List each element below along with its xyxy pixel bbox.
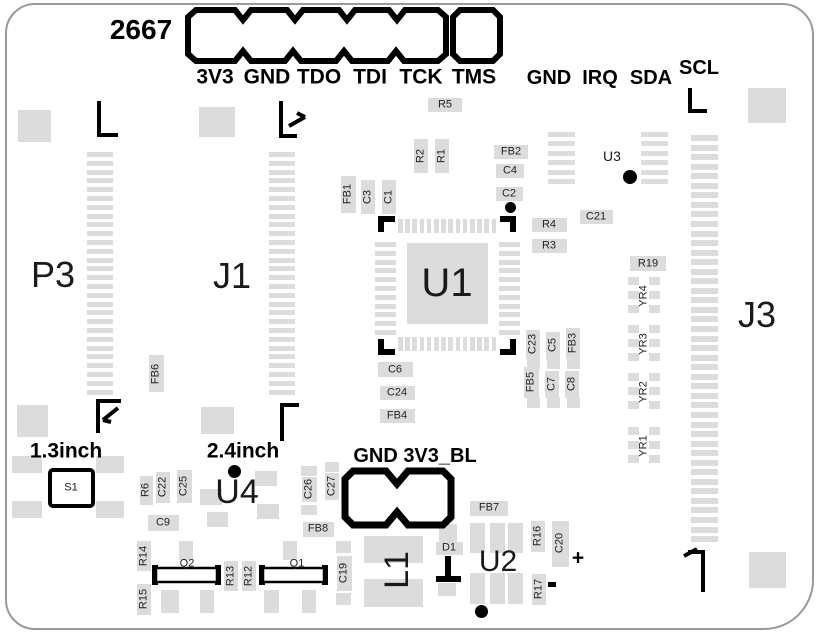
connector-pad	[87, 310, 113, 315]
connector-pad	[499, 268, 520, 273]
connector-pad	[548, 179, 575, 184]
connector-pad	[269, 328, 295, 333]
silk-mark	[215, 565, 221, 585]
refdes-c5: C5	[548, 338, 559, 352]
connector-pad	[420, 337, 425, 351]
connector-pad	[641, 141, 668, 146]
refdes-c24: C24	[387, 388, 407, 399]
connector-pad	[87, 390, 113, 395]
connector-pad	[87, 161, 113, 166]
connector-pad	[87, 222, 113, 227]
refdes-r3: R3	[542, 241, 556, 252]
connector-pad	[499, 277, 520, 282]
refdes-u3: U3	[603, 149, 621, 163]
refdes-r5: R5	[438, 100, 452, 111]
connector-pad	[641, 170, 668, 175]
connector-pad	[691, 441, 718, 447]
connector-pad	[405, 219, 410, 233]
connector-pad	[269, 346, 295, 351]
connector-pad	[87, 302, 113, 307]
connector-pad	[477, 219, 482, 233]
refdes-r17: R17	[534, 579, 545, 599]
connector-pad	[463, 219, 468, 233]
connector-pad	[448, 337, 453, 351]
silk-mark	[152, 565, 158, 585]
connector-pad	[375, 321, 396, 326]
connector-pad	[269, 310, 295, 315]
pad	[649, 353, 660, 361]
connector-pad	[499, 242, 520, 247]
silk-mark	[322, 565, 328, 585]
refdes-c27: C27	[327, 476, 338, 496]
polarity-plus-mark: +	[572, 548, 584, 569]
connector-pad	[499, 260, 520, 265]
pad	[257, 504, 279, 519]
connector-pad	[691, 383, 718, 389]
pad	[264, 590, 279, 613]
silk-mark	[445, 556, 451, 578]
refdes-c21: C21	[586, 212, 606, 223]
connector-pad	[87, 231, 113, 236]
connector-pad	[87, 381, 113, 386]
connector-pad	[641, 179, 668, 184]
refdes-j3: J3	[738, 297, 776, 333]
jtag-pin-label-tdi: TDI	[353, 67, 387, 88]
connector-pad	[641, 160, 668, 165]
connector-pad	[492, 337, 497, 351]
jtag-pin-label-gnd: GND	[244, 67, 291, 88]
silk-mark	[436, 576, 461, 582]
connector-pad	[412, 219, 417, 233]
connector-pad	[691, 316, 718, 322]
refdes-u2: U2	[479, 547, 517, 577]
connector-pad	[691, 135, 718, 141]
connector-pad	[484, 337, 489, 351]
pad	[628, 325, 639, 333]
refdes-r14: R14	[139, 546, 150, 566]
pin1-dot	[505, 202, 516, 213]
refdes-fb6: FB6	[151, 364, 162, 384]
connector-pad	[691, 364, 718, 370]
refdes-c22: C22	[158, 477, 169, 497]
connector-pad	[691, 374, 718, 380]
pad	[649, 277, 660, 285]
pad	[547, 359, 560, 369]
connector-pad	[269, 390, 295, 395]
connector-pad	[492, 219, 497, 233]
pad	[628, 277, 639, 285]
connector-pad	[87, 354, 113, 359]
pad	[301, 505, 317, 515]
connector-pad	[87, 187, 113, 192]
pad	[336, 593, 351, 605]
pad	[547, 397, 560, 408]
refdes-q2: Q2	[180, 559, 195, 570]
connector-pad	[434, 337, 439, 351]
connector-pad	[375, 295, 396, 300]
connector-pad	[87, 266, 113, 271]
pad	[649, 427, 660, 435]
board-marking: 2667	[110, 16, 172, 44]
refdes-yr3: YR3	[639, 333, 650, 354]
connector-pad	[375, 286, 396, 291]
connector-pad	[691, 278, 718, 284]
connector-pad	[269, 205, 295, 210]
jtag-pin-label-tdo: TDO	[297, 67, 341, 88]
refdes-fb3: FB3	[568, 333, 579, 353]
annotation-1-3inch: 1.3inch	[30, 441, 102, 462]
pad	[748, 88, 786, 123]
connector-pad	[269, 275, 295, 280]
backlight-header-label: GND 3V3_BL	[353, 446, 476, 466]
connector-pad	[691, 192, 718, 198]
connector-pad	[87, 363, 113, 368]
refdes-c3: C3	[363, 190, 374, 204]
pad	[649, 325, 660, 333]
connector-pad	[87, 214, 113, 219]
connector-pad	[420, 219, 425, 233]
pad	[649, 387, 660, 395]
connector-pad	[641, 132, 668, 137]
connector-pad	[269, 284, 295, 289]
pin1-dot	[475, 605, 488, 618]
refdes-c7: C7	[547, 377, 558, 391]
connector-pad	[691, 202, 718, 208]
connector-pad	[691, 507, 718, 513]
connector-pad	[691, 221, 718, 227]
connector-pad	[691, 431, 718, 437]
pad	[649, 441, 660, 449]
connector-pad	[269, 187, 295, 192]
connector-pad	[405, 337, 410, 351]
connector-pad	[87, 293, 113, 298]
pin1-dot	[623, 170, 637, 184]
connector-pad	[269, 161, 295, 166]
refdes-r2: R2	[416, 149, 427, 163]
connector-pad	[427, 337, 432, 351]
connector-pad	[87, 249, 113, 254]
connector-pad	[548, 132, 575, 137]
refdes-c8: C8	[567, 377, 578, 391]
refdes-fb5: FB5	[526, 372, 537, 392]
refdes-r1: R1	[437, 149, 448, 163]
refdes-fb8: FB8	[308, 524, 328, 535]
connector-pad	[87, 372, 113, 377]
connector-pad	[548, 160, 575, 165]
connector-pad	[375, 330, 396, 335]
pad	[17, 405, 48, 437]
connector-pad	[269, 170, 295, 175]
connector-pad	[691, 250, 718, 256]
connector-pad	[463, 337, 468, 351]
refdes-c26: C26	[304, 479, 315, 499]
connector-pad	[691, 402, 718, 408]
refdes-l1: L1	[380, 551, 414, 589]
refdes-yr4: YR4	[639, 285, 650, 306]
connector-pad	[499, 251, 520, 256]
refdes-fb4: FB4	[387, 411, 407, 422]
pad	[18, 110, 51, 142]
pad	[207, 512, 228, 527]
connector-pad	[691, 259, 718, 265]
connector-pad	[470, 219, 475, 233]
refdes-r13: R13	[226, 566, 237, 586]
refdes-fb2: FB2	[501, 147, 521, 158]
pad	[201, 407, 234, 434]
connector-pad	[269, 258, 295, 263]
refdes-c2: C2	[502, 189, 516, 200]
refdes-u4: U4	[215, 475, 258, 509]
connector-pad	[269, 214, 295, 219]
connector-pad	[87, 152, 113, 157]
pad	[649, 339, 660, 347]
pad	[649, 291, 660, 299]
connector-pad	[691, 479, 718, 485]
pad	[649, 401, 660, 409]
pad	[438, 583, 456, 596]
connector-pad	[375, 242, 396, 247]
connector-pad	[691, 422, 718, 428]
connector-pad	[691, 231, 718, 237]
connector-pad	[375, 312, 396, 317]
connector-pad	[269, 293, 295, 298]
refdes-j1: J1	[213, 258, 251, 294]
connector-pad	[87, 328, 113, 333]
refdes-r4: R4	[542, 220, 556, 231]
connector-pad	[691, 154, 718, 160]
refdes-c9: C9	[156, 518, 170, 529]
refdes-r15: R15	[139, 589, 150, 609]
refdes-s1: S1	[64, 483, 77, 494]
i2c-label-scl: SCL	[679, 58, 719, 78]
connector-pad	[691, 240, 718, 246]
connector-pad	[691, 536, 718, 542]
connector-pad	[691, 527, 718, 533]
connector-pad	[691, 211, 718, 217]
pad	[439, 524, 457, 542]
connector-pad	[691, 326, 718, 332]
connector-pad	[375, 304, 396, 309]
connector-pad	[441, 337, 446, 351]
connector-pad	[269, 319, 295, 324]
pad	[527, 397, 540, 408]
connector-pad	[548, 141, 575, 146]
connector-pad	[691, 412, 718, 418]
silk-mark	[259, 565, 265, 585]
connector-pad	[269, 302, 295, 307]
refdes-c1: C1	[384, 190, 395, 204]
pad	[325, 462, 339, 472]
connector-pad	[87, 170, 113, 175]
connector-pad	[691, 355, 718, 361]
connector-pad	[548, 170, 575, 175]
connector-pad	[269, 196, 295, 201]
annotation-2-4inch: 2.4inch	[207, 441, 279, 462]
connector-pad	[470, 337, 475, 351]
connector-pad	[269, 240, 295, 245]
connector-pad	[269, 381, 295, 386]
pad	[649, 455, 660, 463]
connector-pad	[691, 307, 718, 313]
connector-pad	[87, 337, 113, 342]
connector-pad	[398, 337, 403, 351]
connector-pad	[499, 330, 520, 335]
connector-pad	[691, 183, 718, 189]
pad	[200, 590, 214, 613]
connector-pad	[87, 240, 113, 245]
refdes-r16: R16	[533, 526, 544, 546]
connector-pad	[375, 277, 396, 282]
refdes-c4: C4	[503, 166, 517, 177]
pad	[199, 107, 235, 137]
connector-pad	[691, 488, 718, 494]
jtag-pin-label-3v3: 3V3	[196, 67, 233, 88]
connector-pad	[691, 393, 718, 399]
connector-pad	[641, 151, 668, 156]
connector-pad	[691, 336, 718, 342]
connector-pad	[448, 219, 453, 233]
pad	[161, 590, 179, 613]
connector-pad	[269, 231, 295, 236]
connector-pad	[691, 288, 718, 294]
connector-pad	[87, 284, 113, 289]
connector-pad	[499, 312, 520, 317]
connector-pad	[398, 219, 403, 233]
refdes-c25: C25	[179, 476, 190, 496]
pad	[628, 427, 639, 435]
refdes-r6: R6	[141, 483, 152, 497]
pad	[649, 305, 660, 313]
connector-pad	[269, 337, 295, 342]
i2c-label-irq: IRQ	[582, 68, 618, 88]
connector-pad	[691, 517, 718, 523]
pcb-silkscreen-diagram: R5R2R1FB1C3C1FB2C4C2C21R4R3C6C24FB4C23C5…	[0, 0, 819, 633]
connector-pad	[691, 145, 718, 151]
connector-pad	[269, 152, 295, 157]
connector-pad	[548, 151, 575, 156]
pad	[567, 359, 580, 369]
connector-pad	[427, 219, 432, 233]
jtag-pin-label-tck: TCK	[399, 67, 442, 88]
refdes-yr2: YR2	[639, 381, 650, 402]
pad	[628, 373, 639, 381]
connector-pad	[269, 354, 295, 359]
connector-pad	[87, 258, 113, 263]
connector-pad	[375, 251, 396, 256]
connector-pad	[87, 196, 113, 201]
connector-pad	[499, 295, 520, 300]
connector-pad	[269, 372, 295, 377]
connector-pad	[269, 222, 295, 227]
connector-pad	[691, 173, 718, 179]
connector-pad	[484, 219, 489, 233]
refdes-fb1: FB1	[343, 184, 354, 204]
connector-pad	[691, 450, 718, 456]
silk-mark	[548, 582, 556, 587]
pad	[12, 501, 42, 518]
connector-pad	[691, 469, 718, 475]
refdes-c23: C23	[528, 334, 539, 354]
connector-pad	[375, 268, 396, 273]
connector-pad	[269, 178, 295, 183]
connector-pad	[87, 346, 113, 351]
connector-pad	[456, 337, 461, 351]
pad	[301, 466, 317, 476]
refdes-u1: U1	[421, 263, 472, 303]
connector-pad	[691, 498, 718, 504]
pad	[749, 552, 786, 588]
refdes-c6: C6	[388, 365, 402, 376]
connector-pad	[691, 269, 718, 275]
i2c-label-gnd: GND	[527, 68, 571, 88]
connector-pad	[691, 460, 718, 466]
connector-pad	[87, 275, 113, 280]
refdes-r19: R19	[638, 259, 658, 270]
connector-pad	[477, 337, 482, 351]
pad	[649, 373, 660, 381]
i2c-label-sda: SDA	[630, 68, 672, 88]
connector-pad	[269, 363, 295, 368]
pad	[302, 590, 316, 613]
jtag-pin-label-tms: TMS	[452, 67, 496, 88]
refdes-yr1: YR1	[639, 435, 650, 456]
pad	[96, 501, 124, 518]
connector-pad	[375, 260, 396, 265]
connector-pad	[691, 345, 718, 351]
connector-pad	[499, 321, 520, 326]
pad	[567, 397, 580, 408]
refdes-fb7: FB7	[479, 503, 499, 514]
connector-pad	[269, 249, 295, 254]
refdes-r12: R12	[244, 566, 255, 586]
refdes-q1: Q1	[290, 559, 305, 570]
connector-pad	[269, 266, 295, 271]
connector-pad	[434, 219, 439, 233]
pad	[336, 541, 351, 553]
refdes-c20: C20	[555, 533, 566, 553]
connector-pad	[499, 286, 520, 291]
connector-pad	[456, 219, 461, 233]
connector-pad	[691, 297, 718, 303]
connector-pad	[412, 337, 417, 351]
connector-pad	[691, 164, 718, 170]
connector-pad	[441, 219, 446, 233]
refdes-d1: D1	[442, 543, 456, 554]
connector-pad	[87, 319, 113, 324]
connector-pad	[499, 304, 520, 309]
connector-pad	[87, 205, 113, 210]
connector-pad	[87, 178, 113, 183]
refdes-c19: C19	[339, 563, 350, 583]
refdes-p3: P3	[31, 257, 75, 293]
